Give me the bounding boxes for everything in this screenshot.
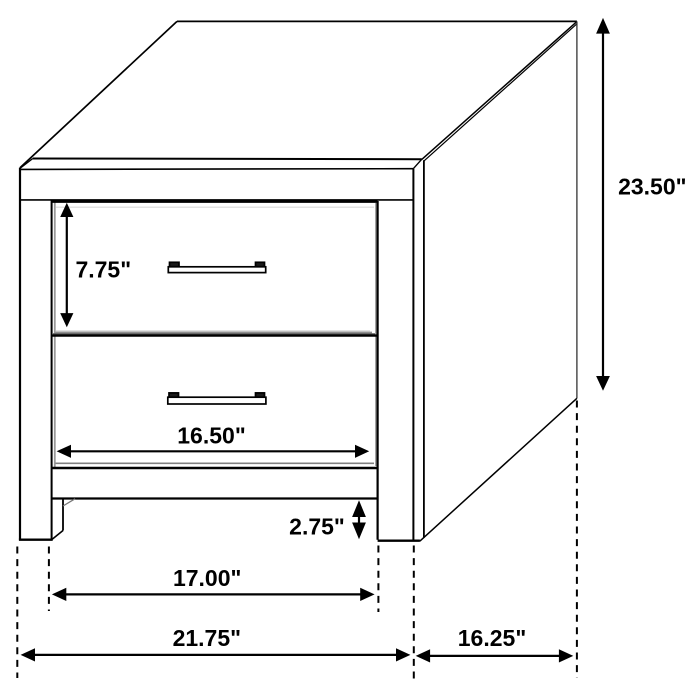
svg-text:16.50": 16.50" [177, 422, 245, 448]
svg-text:16.25": 16.25" [458, 625, 526, 651]
svg-text:2.75": 2.75" [289, 514, 345, 540]
svg-text:23.50": 23.50" [618, 173, 686, 199]
svg-text:7.75": 7.75" [75, 257, 131, 283]
svg-text:17.00": 17.00" [173, 565, 241, 591]
svg-text:21.75": 21.75" [173, 625, 241, 651]
